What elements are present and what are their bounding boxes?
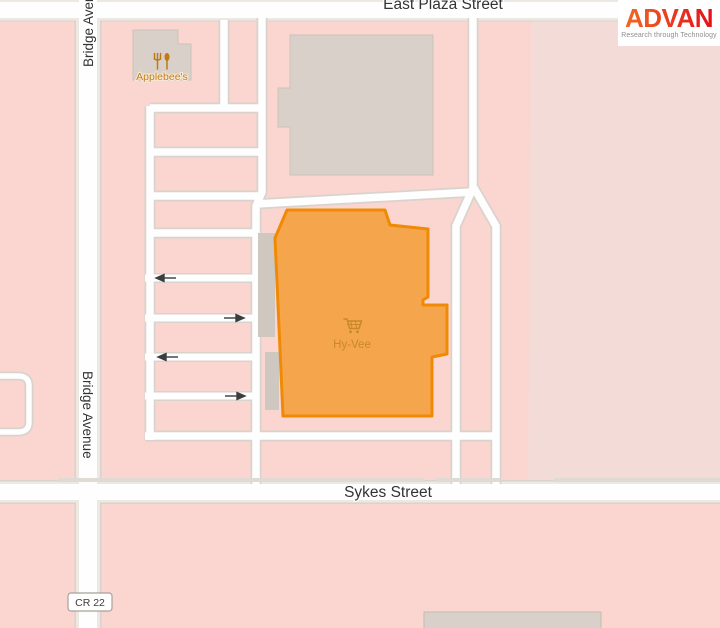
map-canvas[interactable]: East Plaza Street Bridge Aven Bridge Ave… [0,0,720,628]
street-label-bridge-avenue-top: Bridge Aven [81,0,96,67]
sidewalk-strips [58,478,720,482]
large-gray-building [278,35,433,175]
advan-logo-tagline: Research through Technology [621,32,717,39]
route-badge-label: CR 22 [75,597,105,609]
bottom-edge-building [424,612,601,628]
street-label-sykes: Sykes Street [344,484,433,501]
hyvee-building-highlight[interactable] [275,210,447,416]
hyvee-label: Hy-Vee [333,339,371,351]
street-label-bridge-avenue-mid: Bridge Avenue [80,371,95,459]
hyvee-dock-strip [265,352,279,410]
parcel-east [528,20,720,483]
advan-logo-wordmark: ADVAN [625,3,713,33]
applebees-label: Applebee's [136,71,188,83]
hyvee-dock-strip [258,233,275,337]
street-label-east-plaza: East Plaza Street [383,0,503,13]
advan-logo: ADVAN Research through Technology [618,0,720,46]
route-badge-cr22: CR 22 [68,593,112,611]
